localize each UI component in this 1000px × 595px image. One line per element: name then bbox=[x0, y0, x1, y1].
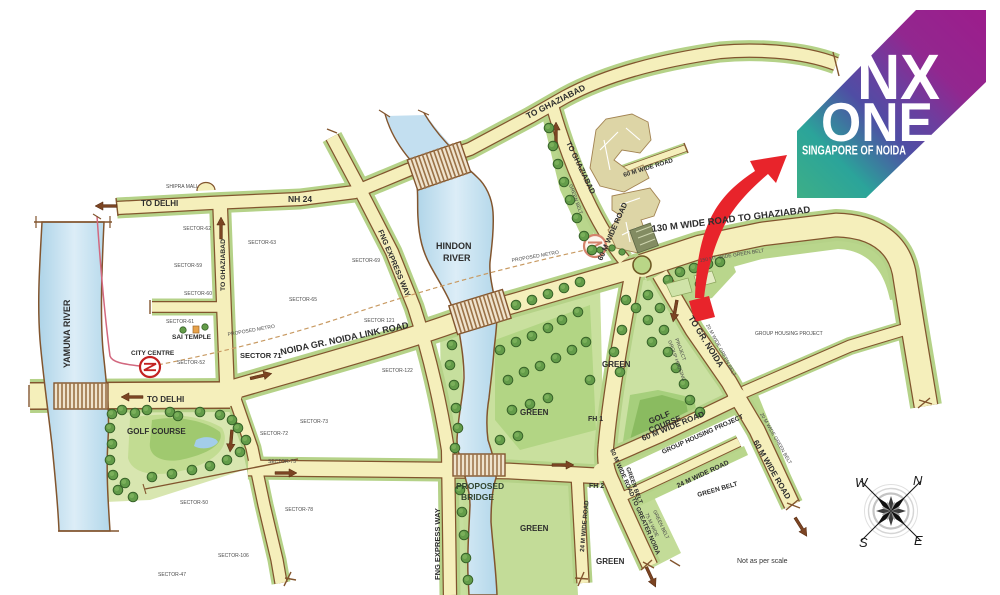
svg-text:W: W bbox=[855, 475, 869, 490]
svg-text:GREEN: GREEN bbox=[520, 408, 549, 417]
svg-text:SECTOR-72: SECTOR-72 bbox=[260, 431, 288, 437]
svg-text:SECTOR 121: SECTOR 121 bbox=[364, 318, 395, 324]
svg-text:SECTOR-75: SECTOR-75 bbox=[268, 459, 296, 465]
svg-text:GOLF COURSE: GOLF COURSE bbox=[127, 427, 186, 436]
svg-text:SECTOR-65: SECTOR-65 bbox=[289, 297, 317, 303]
svg-text:GROUP HOUSING PROJECT: GROUP HOUSING PROJECT bbox=[755, 331, 823, 337]
svg-text:YAMUNA RIVER: YAMUNA RIVER bbox=[62, 299, 72, 368]
svg-text:GREEN: GREEN bbox=[520, 524, 549, 533]
svg-text:PROPOSED: PROPOSED bbox=[456, 481, 504, 491]
svg-text:N: N bbox=[913, 473, 923, 488]
svg-text:SECTOR-52: SECTOR-52 bbox=[177, 360, 205, 366]
svg-text:SECTOR-59: SECTOR-59 bbox=[174, 263, 202, 269]
svg-text:Not as per scale: Not as per scale bbox=[737, 558, 788, 565]
svg-text:RIVER: RIVER bbox=[443, 253, 471, 263]
svg-text:BRIDGE: BRIDGE bbox=[461, 492, 494, 502]
svg-text:E: E bbox=[914, 533, 923, 548]
svg-text:S: S bbox=[859, 535, 868, 550]
svg-text:SECTOR-78: SECTOR-78 bbox=[285, 507, 313, 513]
svg-text:SECTOR-122: SECTOR-122 bbox=[382, 368, 413, 374]
svg-text:SECTOR-106: SECTOR-106 bbox=[218, 553, 249, 559]
svg-text:SECTOR 71: SECTOR 71 bbox=[240, 351, 282, 360]
svg-text:TO DELHI: TO DELHI bbox=[147, 395, 184, 404]
svg-text:FNG EXPRESS WAY: FNG EXPRESS WAY bbox=[433, 508, 442, 580]
svg-text:NH 24: NH 24 bbox=[288, 194, 312, 204]
svg-text:SHIPRA MALL: SHIPRA MALL bbox=[166, 184, 199, 190]
svg-text:SECTOR-50: SECTOR-50 bbox=[180, 500, 208, 506]
svg-text:SECTOR-47: SECTOR-47 bbox=[158, 572, 186, 578]
svg-text:SECTOR-62: SECTOR-62 bbox=[183, 226, 211, 232]
svg-text:SECTOR-60: SECTOR-60 bbox=[184, 291, 212, 297]
svg-text:TO DELHI: TO DELHI bbox=[141, 199, 178, 208]
svg-text:SECTOR-69: SECTOR-69 bbox=[352, 258, 380, 264]
svg-text:FH 2: FH 2 bbox=[589, 483, 604, 490]
svg-text:CITY CENTRE: CITY CENTRE bbox=[131, 350, 175, 357]
svg-text:SECTOR-73: SECTOR-73 bbox=[300, 419, 328, 425]
svg-text:SINGAPORE OF NOIDA: SINGAPORE OF NOIDA bbox=[802, 144, 906, 158]
svg-text:SECTOR-61: SECTOR-61 bbox=[166, 319, 194, 325]
svg-text:GREEN: GREEN bbox=[602, 360, 631, 369]
svg-text:SECTOR-63: SECTOR-63 bbox=[248, 240, 276, 246]
svg-text:GREEN: GREEN bbox=[596, 557, 625, 566]
svg-text:TO GHAZIABAD: TO GHAZIABAD bbox=[220, 239, 227, 291]
svg-text:SAI TEMPLE: SAI TEMPLE bbox=[172, 334, 212, 341]
svg-text:FH 1: FH 1 bbox=[588, 416, 603, 423]
svg-text:HINDON: HINDON bbox=[436, 241, 472, 251]
